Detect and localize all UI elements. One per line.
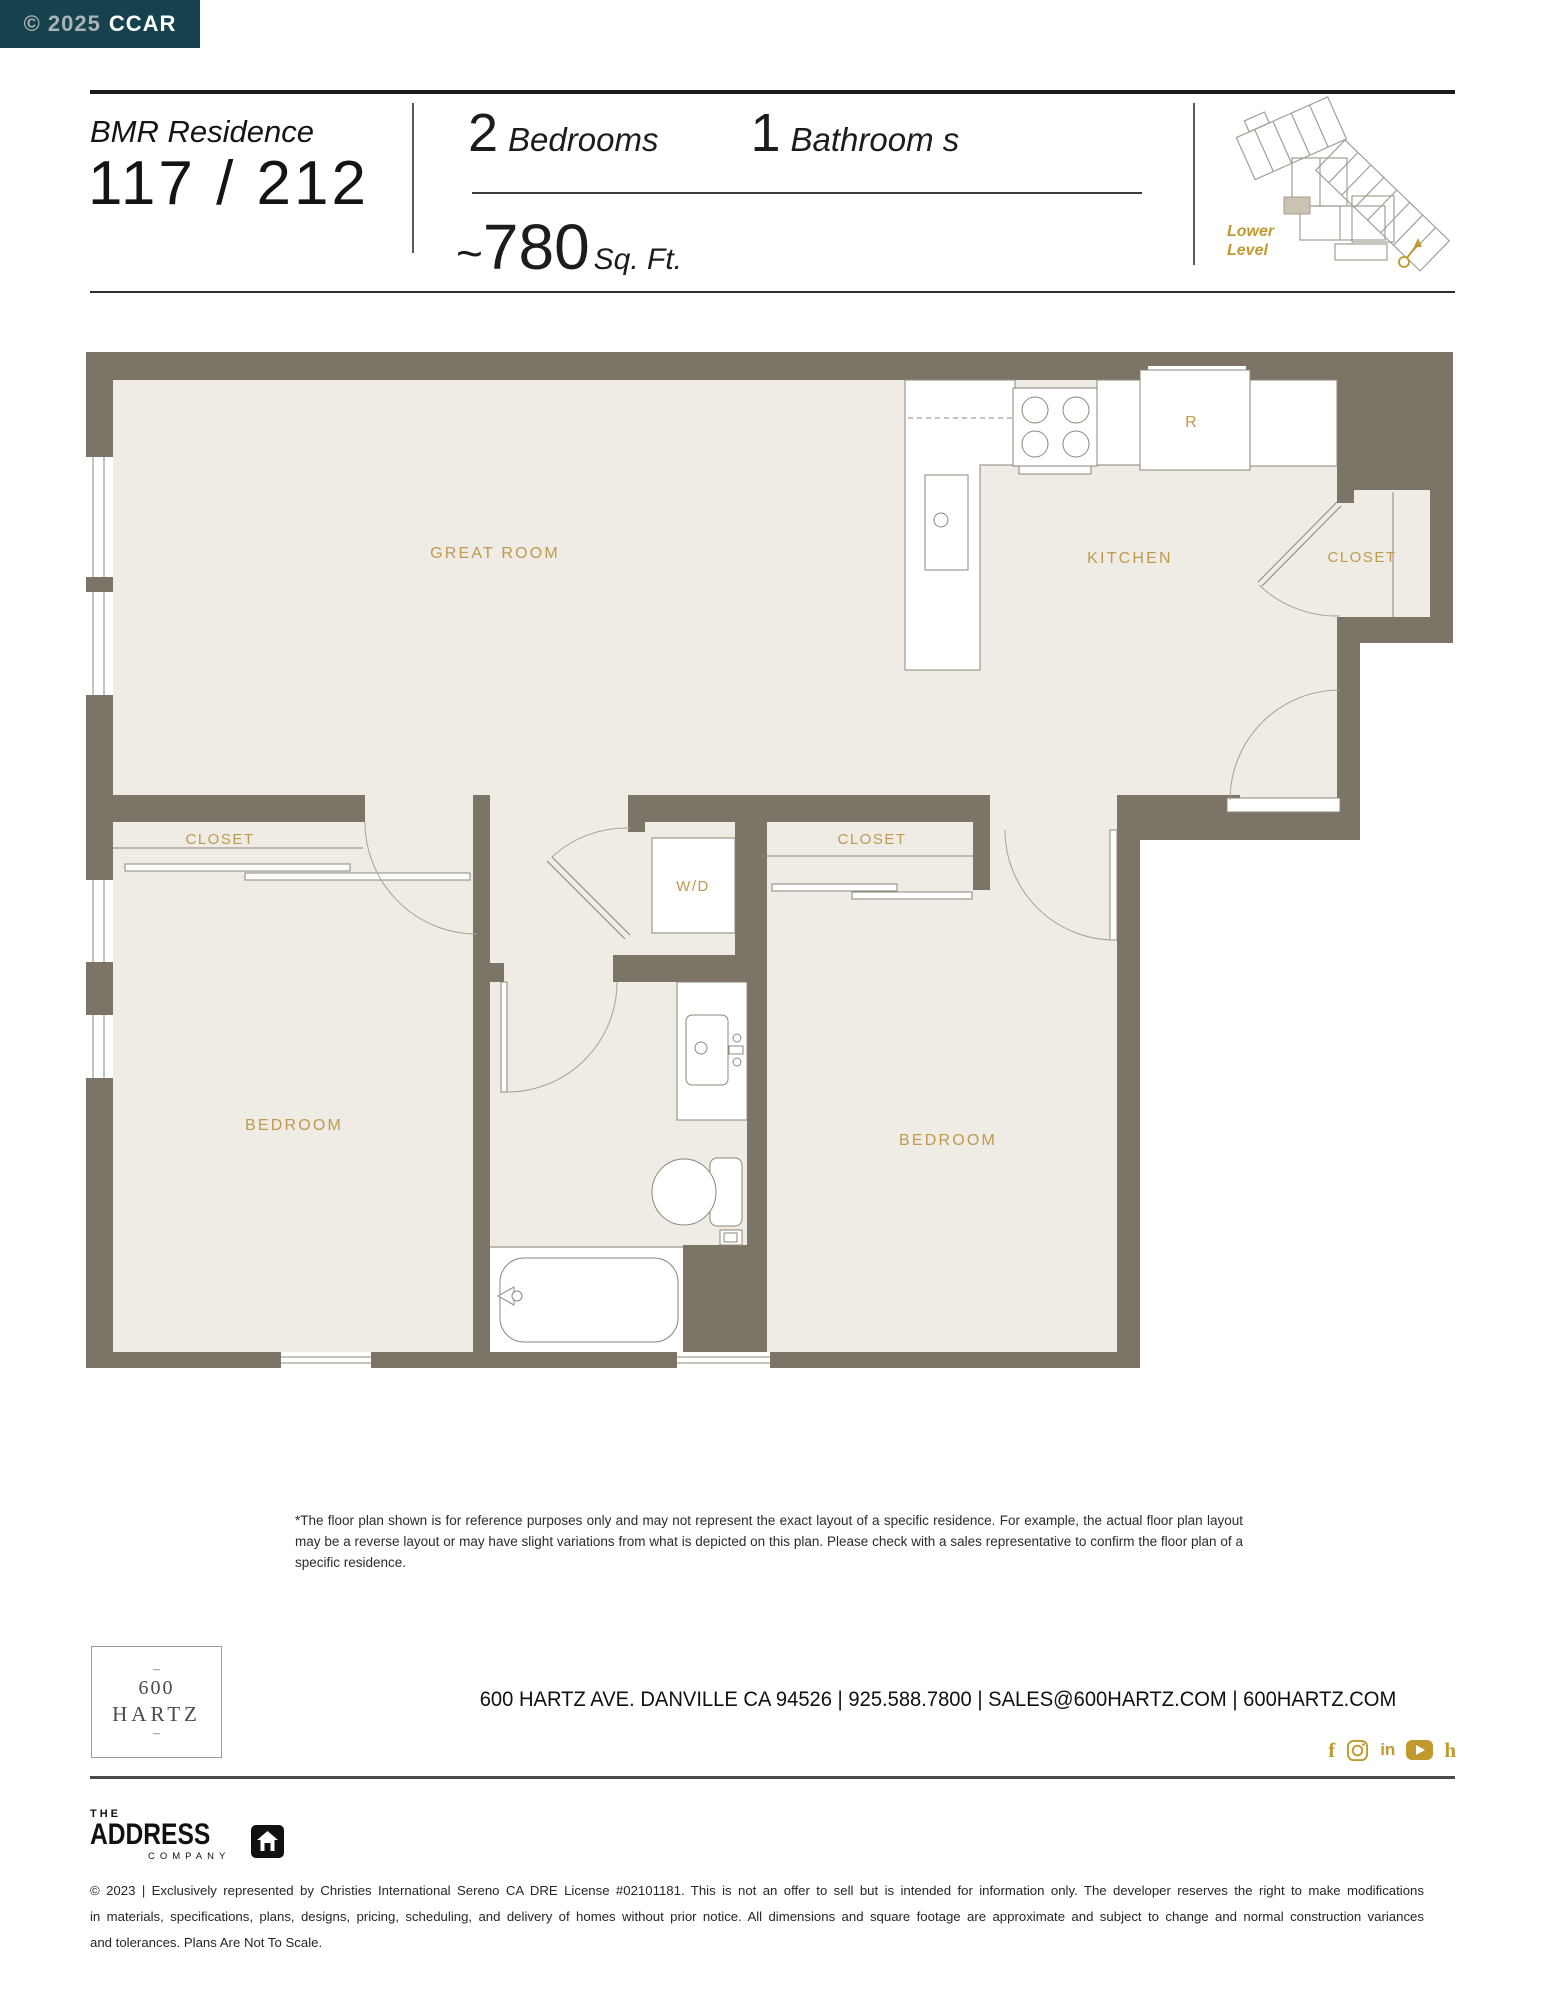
footer-rule [90,1776,1455,1779]
header-bottom-rule [90,291,1455,293]
disclaimer-text: *The floor plan shown is for reference p… [295,1510,1243,1573]
header-divider-2 [1193,103,1195,265]
logo-600: 600 [139,1677,175,1700]
houzz-icon[interactable]: h [1444,1738,1456,1762]
linkedin-icon[interactable]: in [1380,1738,1395,1762]
room-label-great-room: GREAT ROOM [430,545,560,562]
sqft-tilde: ~ [456,226,483,280]
toilet-icon [652,1159,716,1225]
sqft-unit: Sq. Ft. [594,243,682,277]
social-icons-row: f in h [1280,1738,1456,1762]
contact-address-line: 600 HARTZ AVE. DANVILLE CA 94526 | 925.5… [441,1688,1436,1712]
room-label-entry-closet: CLOSET [1327,549,1396,566]
sqft-value: 780 [483,214,590,280]
header-divider-1 [412,103,414,253]
residence-label: BMR Residence [90,114,314,150]
room-label-bedroom-left: BEDROOM [245,1117,343,1134]
room-label-bedroom2-closet: CLOSET [837,831,906,848]
bedrooms-value: 2 [468,104,498,162]
north-compass-icon [1399,238,1422,267]
house-icon [250,1824,285,1859]
youtube-icon[interactable] [1406,1738,1433,1762]
bathrooms-label: Bathroom s [791,121,960,159]
room-label-bedroom1-closet: CLOSET [185,831,254,848]
room-label-washer-dryer: W/D [676,878,710,895]
sink-drain-icon [934,513,948,527]
badge-brand: CCAR [109,11,177,37]
floorplan-flyer-page: © 2025 CCAR BMR Residence 117 / 212 2 Be… [0,0,1545,2000]
spec-row: 2 Bedrooms 1 Bathroom s [468,104,959,162]
header-top-rule [90,90,1455,94]
room-label-bedroom-right: BEDROOM [899,1132,997,1149]
instagram-icon[interactable] [1346,1738,1369,1762]
600-hartz-logo: – 600 HARTZ – [91,1646,222,1758]
bathrooms-value: 1 [750,104,780,162]
map-wing-left [1232,95,1347,180]
floor-plan: GREAT ROOM KITCHEN CLOSET CLOSET CLOSET … [86,352,1453,1368]
logo-hartz: HARTZ [112,1702,201,1727]
badge-year: © 2025 [24,11,101,37]
copyright-badge: © 2025 CCAR [0,0,200,48]
legal-text: © 2023 | Exclusively represented by Chri… [90,1878,1424,1956]
bathtub-icon [500,1258,678,1342]
bedrooms-label: Bedrooms [508,121,658,159]
refrigerator-label: R [1185,414,1199,431]
residence-number: 117 / 212 [88,148,369,219]
sqft-row: ~ 780 Sq. Ft. [456,214,682,280]
map-highlighted-unit [1284,197,1310,214]
room-label-kitchen: KITCHEN [1087,550,1173,567]
the-address-company-logo: THE ADDRESS COMPANY [90,1808,237,1862]
spec-underline [472,192,1142,194]
facebook-icon[interactable]: f [1328,1738,1335,1762]
level-label: Lower Level [1227,222,1274,260]
